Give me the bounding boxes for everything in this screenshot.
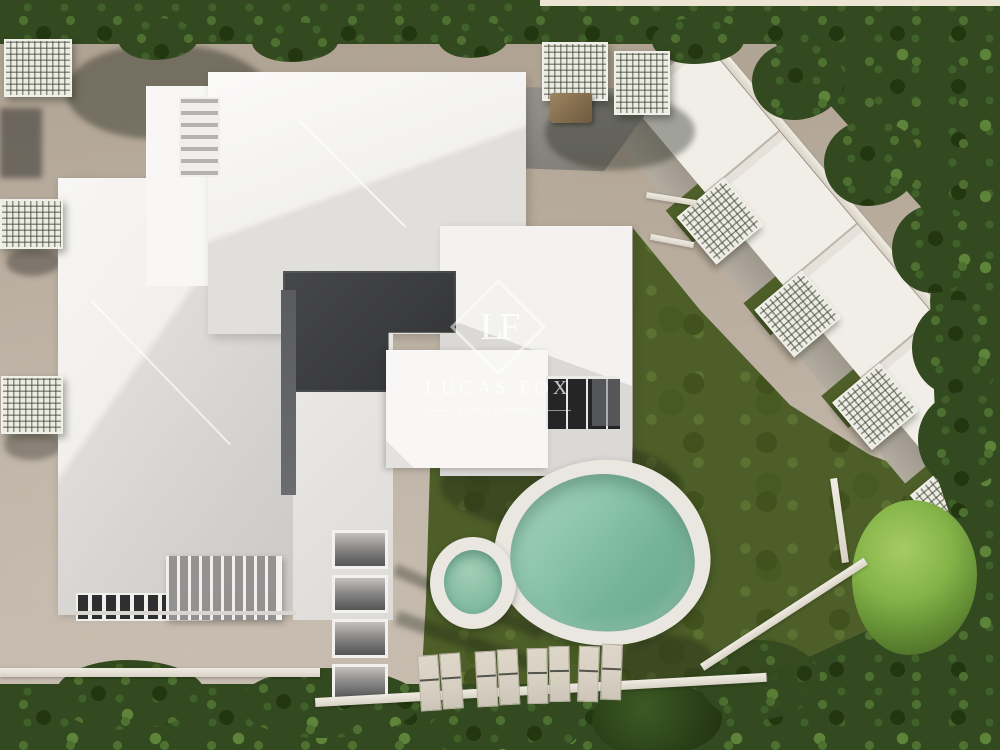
tagline-rule-right [545,410,571,411]
watermark-monogram: LF [480,305,516,349]
tree-shadow [0,108,42,178]
watermark-brand: LUCAS FOX [378,377,618,400]
furniture-shadow [4,430,62,460]
sun-lounger [497,648,521,705]
top-edge-strip [540,0,1000,6]
shaded-wall-strip [281,290,296,495]
furniture-shadow [6,248,61,276]
kids-pool [444,550,502,614]
tree-canopy [752,42,844,120]
sun-lounger [527,648,549,704]
planter-box [332,575,388,614]
sun-lounger [577,646,600,703]
watermark-tagline: a DILS company [458,405,539,415]
tree-canopy [438,20,508,58]
sun-lounger [439,652,464,709]
sun-lounger [600,644,623,701]
planter-box [332,530,388,569]
planter-stack [332,530,388,702]
tree-canopy [912,300,1000,395]
pergola [0,199,63,249]
pergola [614,51,670,115]
pergola [4,39,72,97]
tree-canopy [824,120,920,206]
sun-lounger [549,646,571,702]
planter-box [332,619,388,658]
sun-lounger [475,650,499,707]
tree-canopy [252,22,338,62]
tagline-rule-left [425,410,451,411]
sun-lounger [417,654,442,711]
outdoor-table [550,93,592,123]
watermark-logo: LF LUCAS FOX a DILS company [378,293,618,415]
garden-path [0,668,320,677]
aerial-property-render: LF LUCAS FOX a DILS company [0,0,1000,750]
pergola [1,376,63,434]
building-bottom-edge [58,611,296,615]
tree-canopy [918,392,1000,487]
louver-panel-top [179,97,220,177]
watermark-diamond-icon: LF [450,279,546,375]
watermark-tagline-row: a DILS company [378,405,618,415]
